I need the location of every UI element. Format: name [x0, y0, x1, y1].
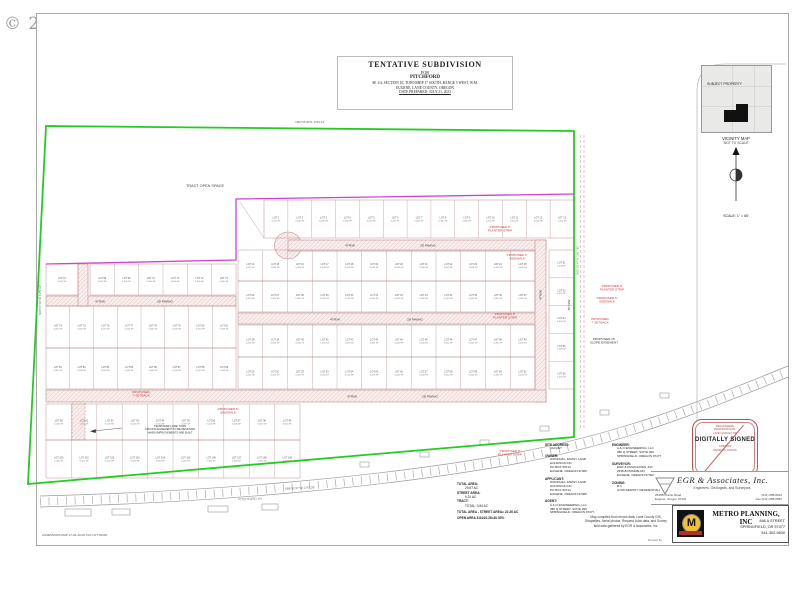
lot-area: 5,000 SF	[295, 342, 305, 344]
lot-number: LOT 69	[123, 277, 132, 280]
lot-number: LOT 22	[444, 263, 453, 266]
map-annotation: 47'R/W	[330, 318, 340, 322]
lot-area: 5,000 SF	[370, 342, 380, 344]
lot-number: LOT 105	[181, 457, 191, 460]
lot-number: LOT 7	[416, 217, 423, 220]
lot-number: LOT 82	[54, 366, 63, 369]
lot-area: 5,000 SF	[54, 423, 64, 425]
lot-area: 5,000 SF	[98, 281, 108, 283]
lot-number: LOT 90	[55, 420, 64, 423]
lot-number: LOT 21	[420, 263, 429, 266]
lot-number: LOT 96	[207, 420, 216, 423]
metro-address-line2: SPRINGFIELD, OR 97477	[707, 525, 785, 529]
lot-number: LOT 53	[321, 371, 330, 374]
lot-number: LOT 65	[558, 345, 567, 348]
lot-number: LOT 61	[519, 371, 528, 374]
map-annotation: PLANTER STRIP	[493, 316, 517, 320]
map-annotation: 28' PAVING	[420, 244, 436, 248]
lot-number: LOT 60	[494, 371, 503, 374]
lot-number: LOT 27	[271, 294, 280, 297]
lot-number: LOT 46	[444, 339, 453, 342]
map-annotation: SIDEWALK	[599, 300, 616, 304]
lot-area: 5,000 SF	[171, 281, 181, 283]
applicant-line: EUGENE, OREGON 97405	[545, 493, 607, 497]
lot-number: LOT 44	[395, 339, 404, 342]
lot-number: LOT 101	[79, 457, 89, 460]
lot-number: LOT 57	[420, 371, 429, 374]
lot-area: 5,000 SF	[130, 423, 140, 425]
lot-number: LOT 35	[469, 294, 478, 297]
lot-area: 5,000 SF	[246, 298, 256, 300]
lot-number: LOT 42	[345, 339, 354, 342]
lot-number: LOT 76	[101, 325, 110, 328]
lot-number: LOT 17	[321, 263, 330, 266]
lot-area: 5,000 SF	[220, 370, 230, 372]
egr-address-line2: Eugene, Oregon 97402	[655, 498, 686, 502]
seal-renews: RENEWS: 6/30/25	[693, 449, 757, 452]
lot-number: LOT 81	[220, 325, 229, 328]
lot-number: LOT 40	[296, 339, 305, 342]
map-annotation: 28' PAVING	[407, 318, 423, 322]
egr-firm-name: EGR & Associates, Inc.	[677, 475, 768, 485]
lot-number: LOT 15	[271, 263, 280, 266]
lot-number: LOT 88	[196, 366, 205, 369]
lot-area: 5,000 SF	[283, 423, 293, 425]
lot-number: LOT 6	[392, 217, 399, 220]
lot-area: 5,000 SF	[271, 374, 281, 376]
lot-number: LOT 79	[173, 325, 182, 328]
lot-area: 5,000 SF	[493, 267, 503, 269]
map-annotation: N89°54'40"E 1739.13'	[295, 120, 325, 124]
lot-number: LOT 30	[345, 294, 354, 297]
map-annotation: SIDEWALK	[509, 257, 526, 261]
lot-number: LOT 97	[233, 420, 242, 423]
map-annotation: 47'R/W	[539, 290, 543, 300]
lot-area: 5,000 SF	[493, 374, 503, 376]
map-annotation: SIDEWALK	[220, 411, 237, 415]
notes-column-1: SITE ADDRESS: VACANT OWNER: WOODHILL FAM…	[545, 443, 607, 518]
easement-note-arrow	[90, 428, 122, 433]
lot-area: 5,000 SF	[469, 267, 479, 269]
lot-area: 5,000 SF	[557, 265, 567, 267]
plat-sheet-page: © 2023	[0, 0, 800, 600]
lot-area: 5,000 SF	[394, 267, 404, 269]
map-annotation: PLANTER STRIP	[498, 453, 522, 457]
lot-area: 5,000 SF	[486, 220, 496, 222]
lot-number: LOT 12	[534, 217, 543, 220]
lot-area: 5,000 SF	[558, 220, 568, 222]
lot-number: LOT 78	[149, 325, 158, 328]
lot-area: 5,000 SF	[80, 460, 90, 462]
date-prepared: DATE PREPARED: JULY 21, 2023	[338, 90, 512, 94]
lot-number: LOT 28	[296, 294, 305, 297]
lot-area: 5,000 SF	[122, 281, 132, 283]
lot-number: LOT 72	[196, 277, 205, 280]
vicinity-map-panel: SUBJECT PROPERTY VICINITY MAP NOT TO SCA…	[701, 65, 771, 218]
lot-area: 5,000 SF	[220, 328, 230, 330]
lot-number: LOT 47	[469, 339, 478, 342]
lot-number: LOT 34	[444, 294, 453, 297]
assessor-map-reference: ASSESSORS MAP 17-04-10-00 TAX LOT 00100	[42, 533, 107, 537]
lot-area: 5,000 SF	[419, 267, 429, 269]
lot-area: 5,000 SF	[105, 460, 115, 462]
lot-area: 5,000 SF	[469, 298, 479, 300]
lot-number: LOT 89	[220, 366, 229, 369]
applicant-block: APPLICANT: WOODHILL FAMILY LAND HOLDINGS…	[545, 477, 607, 497]
map-annotation: S00°03'47"E 1007.86'	[576, 245, 580, 275]
diagonal-lot-line	[240, 202, 264, 238]
lot-number: LOT 51	[271, 371, 280, 374]
egr-fax-line: Fax (541) 688-8087	[756, 498, 782, 502]
lot-number: LOT 24	[494, 263, 503, 266]
lot-number: LOT 63	[558, 289, 567, 292]
lot-number: LOT 49	[519, 339, 528, 342]
lot-area: 5,000 SF	[510, 220, 520, 222]
lot-area: 5,000 SF	[370, 374, 380, 376]
lot-area: 5,000 SF	[246, 267, 256, 269]
lot-area: 5,000 SF	[493, 342, 503, 344]
east-frontage-lines	[581, 135, 585, 430]
lot-area: 5,000 SF	[257, 460, 267, 462]
lot-number: LOT 25	[519, 263, 528, 266]
site-address-value: VACANT	[545, 447, 607, 451]
lot-number: LOT 32	[395, 294, 404, 297]
map-annotation: WHEN IMPROVEMENTS ARE BUILT	[147, 430, 192, 434]
lot-area: 5,000 SF	[557, 321, 567, 323]
lot-area: 5,000 SF	[319, 220, 329, 222]
lot-number: LOT 95	[182, 420, 191, 423]
lot-area: 5,000 SF	[469, 342, 479, 344]
lot-area: 5,000 SF	[419, 342, 429, 344]
engineer-block: ENGINEER: A & O ENGINEERING, LLC 380 Q S…	[612, 443, 672, 459]
lot-area: 5,000 SF	[394, 342, 404, 344]
lot-area: 5,000 SF	[181, 460, 191, 462]
lot-area: 5,000 SF	[207, 460, 217, 462]
lot-area: 5,000 SF	[394, 374, 404, 376]
lot-number: LOT 56	[395, 371, 404, 374]
lot-number: LOT 58	[444, 371, 453, 374]
seal-text: REGISTERED PROFESSIONAL LAND SURVEYOR DI…	[693, 425, 757, 452]
lot-number: LOT 86	[149, 366, 158, 369]
map-note-line: field data gathered by EGR & Associates,…	[560, 524, 692, 528]
lot-number: LOT 9	[463, 217, 470, 220]
lot-area: 5,000 SF	[370, 267, 380, 269]
lot-number: LOT 68	[98, 277, 107, 280]
project-name: PITCHFORD	[338, 75, 512, 80]
lot-number: LOT 87	[173, 366, 182, 369]
lot-area: 5,000 SF	[343, 220, 353, 222]
metro-firm-name: METRO PLANNING, INC	[707, 510, 785, 526]
engineer-line: SPRINGFIELD, OREGON 97477	[612, 455, 672, 459]
drawing-title: TENTATIVE SUBDIVISION	[338, 60, 512, 69]
lot-number: LOT 19	[370, 263, 379, 266]
lot-area: 5,000 SF	[77, 370, 87, 372]
map-annotation: SLOPE EASEMENT	[590, 341, 618, 345]
lot-area: 5,000 SF	[246, 342, 256, 344]
area-calc-line1: TOTAL AREA - STREET AREA= 22.26 AC	[457, 510, 549, 514]
lot-number: LOT 92	[106, 420, 115, 423]
lot-area: 5,000 SF	[367, 220, 377, 222]
lot-area: 5,000 SF	[130, 460, 140, 462]
lot-number: LOT 2	[296, 217, 303, 220]
lot-number: LOT 80	[196, 325, 205, 328]
lot-area: 5,000 SF	[58, 281, 68, 283]
vicinity-map: SUBJECT PROPERTY	[701, 65, 772, 133]
lot-number: LOT 107	[232, 457, 242, 460]
lot-number: LOT 23	[469, 263, 478, 266]
surveyor-block: SURVEYOR: EGR & ASSOCIATES, INC 2535-B P…	[612, 462, 672, 478]
lot-area: 5,000 SF	[207, 423, 217, 425]
lot-area: 5,000 SF	[80, 423, 90, 425]
lot-area: 5,000 SF	[295, 298, 305, 300]
lot-area: 5,000 SF	[172, 370, 182, 372]
lot-number: LOT 109	[283, 457, 293, 460]
north-arrow	[701, 145, 771, 207]
agent-block: AGENT: A & O ENGINEERING, LLC 380 Q STRE…	[545, 499, 607, 515]
map-scale-label: SCALE: 1" = 60'	[701, 214, 771, 218]
map-annotation: S89°52'47"W 1747.35'	[285, 485, 316, 491]
lot-area: 5,000 SF	[257, 423, 267, 425]
lot-area: 5,000 SF	[345, 267, 355, 269]
lot-area: 5,000 SF	[295, 220, 305, 222]
lot-area: 5,000 SF	[232, 460, 242, 462]
map-annotation: 56' R/W	[567, 300, 571, 311]
lot-area: 5,000 SF	[148, 370, 158, 372]
surveyor-line: EUGENE, OREGON 97402	[612, 474, 672, 478]
lot-number: LOT 13	[558, 217, 567, 220]
owner-line: EUGENE, OREGON 97405	[545, 470, 607, 474]
lot-number: LOT 41	[321, 339, 330, 342]
map-annotation: 47'R/W	[345, 244, 355, 248]
map-annotation: 28' PAVING	[422, 395, 438, 399]
lot-area: 5,000 SF	[415, 220, 425, 222]
lot-area: 5,000 SF	[105, 423, 115, 425]
lot-area: 5,000 SF	[219, 281, 229, 283]
lot-area: 5,000 SF	[493, 298, 503, 300]
lot-area: 5,000 SF	[320, 374, 330, 376]
lot-area: 5,000 SF	[101, 370, 111, 372]
lot-area: 5,000 SF	[271, 298, 281, 300]
lot-area: 5,000 SF	[320, 267, 330, 269]
lot-number: LOT 73	[220, 277, 229, 280]
lot-area: 5,000 SF	[419, 374, 429, 376]
lot-area: 5,000 SF	[469, 374, 479, 376]
subject-property-shape-upper	[736, 104, 748, 112]
lot-number: LOT 8	[440, 217, 447, 220]
lot-number: LOT 36	[494, 294, 503, 297]
lot-area: 5,000 SF	[156, 460, 166, 462]
lot-number: LOT 67	[58, 277, 67, 280]
lot-area: 5,000 SF	[146, 281, 156, 283]
revised-by-note: Revised By	[648, 538, 662, 542]
lot-number: LOT 48	[494, 339, 503, 342]
map-annotation: 28' PAVING	[157, 300, 173, 304]
lot-area: 5,000 SF	[557, 293, 567, 295]
lot-number: LOT 54	[345, 371, 354, 374]
map-annotation: PITCHFORD LN	[238, 497, 262, 502]
area-calc-line2: OPEN AREA 8.84/22.26=40.50%	[457, 516, 549, 520]
lot-area: 5,000 SF	[557, 349, 567, 351]
lot-area: 5,000 SF	[534, 220, 544, 222]
lot-area: 5,000 SF	[271, 342, 281, 344]
seal-outline: REGISTERED PROFESSIONAL LAND SURVEYOR DI…	[692, 419, 758, 477]
lot-number: LOT 1	[273, 217, 280, 220]
lot-number: LOT 29	[321, 294, 330, 297]
lot-number: LOT 75	[78, 325, 87, 328]
map-annotation: TRACT OPEN SPACE	[186, 184, 225, 188]
lot-area: 5,000 SF	[54, 460, 64, 462]
lot-area: 5,000 SF	[101, 328, 111, 330]
site-address-block: SITE ADDRESS: VACANT	[545, 443, 607, 451]
lot-area: 5,000 SF	[77, 328, 87, 330]
lot-number: LOT 38	[246, 339, 255, 342]
lot-area: 5,000 SF	[444, 374, 454, 376]
map-annotation: 7' SETBACK	[132, 394, 151, 398]
lot-area: 5,000 SF	[518, 374, 528, 376]
lot-area: 5,000 SF	[444, 342, 454, 344]
zoning-line: (LOW DENSITY RESIDENTIAL)	[612, 489, 672, 493]
map-annotation: 7' SETBACK	[591, 321, 610, 325]
lot-area: 5,000 SF	[125, 370, 135, 372]
lot-area: 5,000 SF	[557, 377, 567, 379]
lot-number: LOT 55	[370, 371, 379, 374]
map-annotation: 47'R/W	[347, 395, 357, 399]
lot-area: 5,000 SF	[518, 342, 528, 344]
lot-area: 5,000 SF	[271, 267, 281, 269]
lot-number: LOT 103	[130, 457, 140, 460]
lot-number: LOT 99	[283, 420, 292, 423]
lot-area: 5,000 SF	[148, 328, 158, 330]
lot-area: 5,000 SF	[438, 220, 448, 222]
lot-number: LOT 106	[206, 457, 216, 460]
lot-number: LOT 33	[420, 294, 429, 297]
lot-number: LOT 91	[80, 420, 89, 423]
area-summary-block: TOTAL AREA: 29.67 AC STREET AREA: 6.31 A…	[457, 482, 549, 521]
owner-block: OWNER: WOODHILL FAMILY LAND HOLDINGS INC…	[545, 454, 607, 474]
lot-area: 5,000 SF	[195, 281, 205, 283]
lot-number: LOT 5	[368, 217, 375, 220]
metro-address-line1: 846 A STREET	[707, 519, 785, 523]
lot-area: 5,000 SF	[345, 342, 355, 344]
map-annotation: PLANTER STRIP	[600, 288, 624, 292]
lot-area: 5,000 SF	[125, 328, 135, 330]
lot-number: LOT 4	[344, 217, 351, 220]
lot-number: LOT 52	[296, 371, 305, 374]
lot-number: LOT 39	[271, 339, 280, 342]
lot-number: LOT 93	[131, 420, 140, 423]
metro-phone: 541-302-9830	[707, 531, 785, 535]
lot-number: LOT 43	[370, 339, 379, 342]
map-source-note: Map compiled from record data, Lane Coun…	[560, 515, 692, 528]
lot-number: LOT 104	[156, 457, 166, 460]
lot-area: 5,000 SF	[444, 267, 454, 269]
metro-logo-band	[679, 531, 702, 535]
notes-column-2: ENGINEER: A & O ENGINEERING, LLC 380 Q S…	[612, 443, 672, 496]
lot-area: 5,000 SF	[419, 298, 429, 300]
digitally-signed-label: DIGITALLY SIGNED	[693, 437, 757, 443]
lot-area: 5,000 SF	[391, 220, 401, 222]
lot-number: LOT 102	[105, 457, 115, 460]
lot-number: LOT 3	[320, 217, 327, 220]
lot-area: 5,000 SF	[518, 267, 528, 269]
lot-number: LOT 74	[54, 325, 63, 328]
lot-number: LOT 20	[395, 263, 404, 266]
zoning-block: ZONING: R-1 (LOW DENSITY RESIDENTIAL)	[612, 481, 672, 493]
tract-area-value: TOTAL: 0.84 AC	[457, 504, 549, 508]
lot-number: LOT 31	[370, 294, 379, 297]
lot-area: 5,000 SF	[345, 298, 355, 300]
lot-area: 5,000 SF	[196, 328, 206, 330]
lot-area: 5,000 SF	[172, 328, 182, 330]
lot-area: 5,000 SF	[320, 298, 330, 300]
lot-number: LOT 37	[519, 294, 528, 297]
lot-number: LOT 108	[257, 457, 267, 460]
lot-number: LOT 16	[296, 263, 305, 266]
subject-property-label: SUBJECT PROPERTY	[707, 82, 742, 86]
lot-number: LOT 62	[558, 262, 567, 265]
lot-area: 5,000 SF	[295, 374, 305, 376]
lot-area: 5,000 SF	[370, 298, 380, 300]
lot-number: LOT 59	[469, 371, 478, 374]
lot-number: LOT 26	[246, 294, 255, 297]
egr-tagline: Engineers, Geologists, and Surveyors	[677, 486, 767, 490]
lot-area: 5,000 SF	[394, 298, 404, 300]
map-annotation: PLANTER STRIP	[488, 229, 512, 233]
lot-number: LOT 14	[246, 263, 255, 266]
lot-number: LOT 66	[558, 373, 567, 376]
lot-area: 5,000 SF	[232, 423, 242, 425]
lot-area: 5,000 SF	[196, 370, 206, 372]
lot-number: LOT 50	[246, 371, 255, 374]
lot-area: 5,000 SF	[246, 374, 256, 376]
lot-number: LOT 100	[54, 457, 64, 460]
egr-phone: (541) 688-8322 Fax (541) 688-8087	[756, 494, 782, 502]
lot-number: LOT 77	[125, 325, 134, 328]
lot-number: LOT 71	[171, 277, 180, 280]
lot-number: LOT 85	[125, 366, 134, 369]
lot-area: 5,000 SF	[295, 267, 305, 269]
lot-area: 5,000 SF	[53, 328, 63, 330]
lot-area: 5,000 SF	[271, 220, 281, 222]
lot-number: LOT 94	[156, 420, 165, 423]
lot-area: 5,000 SF	[345, 374, 355, 376]
lot-area: 5,000 SF	[444, 298, 454, 300]
lot-number: LOT 11	[511, 217, 519, 220]
seal-land-surveyor: LAND SURVEYOR	[693, 432, 757, 435]
lot-number: LOT 84	[101, 366, 110, 369]
lot-number: LOT 64	[558, 317, 567, 320]
map-annotation: 47'R/W	[95, 300, 105, 304]
lot-number: LOT 98	[258, 420, 267, 423]
lot-number: LOT 70	[147, 277, 156, 280]
lot-number: LOT 83	[78, 366, 87, 369]
surveyor-stamp: REGISTERED PROFESSIONAL LAND SURVEYOR DI…	[692, 419, 758, 477]
lot-area: 5,000 SF	[518, 298, 528, 300]
lot-area: 5,000 SF	[320, 342, 330, 344]
title-block: TENTATIVE SUBDIVISION FOR PITCHFORD SE 1…	[337, 56, 513, 110]
lot-number: LOT 45	[420, 339, 429, 342]
lot-number: LOT 18	[345, 263, 354, 266]
lot-area: 5,000 SF	[53, 370, 63, 372]
lot-number: LOT 10	[487, 217, 496, 220]
lot-area: 5,000 SF	[462, 220, 472, 222]
legal-description: SE 1/4, SECTION 10, TOWNSHIP 17 SOUTH, R…	[338, 81, 512, 85]
